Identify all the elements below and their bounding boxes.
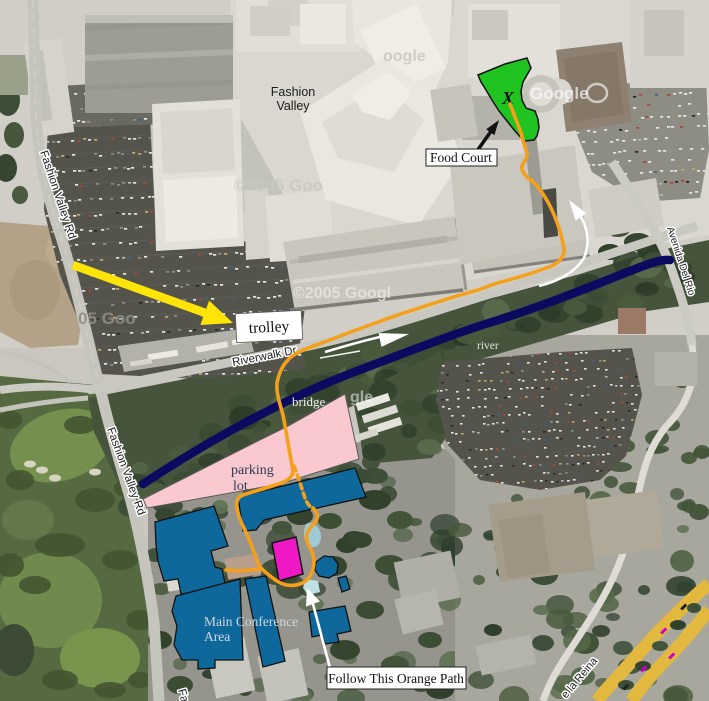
svg-text:parking: parking [231,463,274,478]
svg-text:trolley: trolley [248,318,290,337]
svg-text:05 Goo: 05 Goo [78,309,136,328]
svg-text:©2005 Goo: ©2005 Goo [234,176,323,195]
svg-text:oogle: oogle [383,48,426,65]
svg-text:gle: gle [350,389,373,406]
svg-text:river: river [477,340,499,352]
svg-text:X: X [501,88,515,108]
svg-text:Fashion: Fashion [271,85,316,99]
svg-text:©2005 Googl: ©2005 Googl [293,285,391,302]
svg-text:Main Conference: Main Conference [204,614,298,629]
svg-text:lot: lot [233,479,248,494]
svg-text:Google: Google [530,84,589,103]
svg-text:Valley: Valley [276,99,310,113]
svg-text:bridge: bridge [292,394,325,409]
svg-text:Food Court: Food Court [430,150,492,165]
svg-text:Area: Area [204,629,230,644]
svg-text:Follow This Orange Path: Follow This Orange Path [328,671,464,686]
